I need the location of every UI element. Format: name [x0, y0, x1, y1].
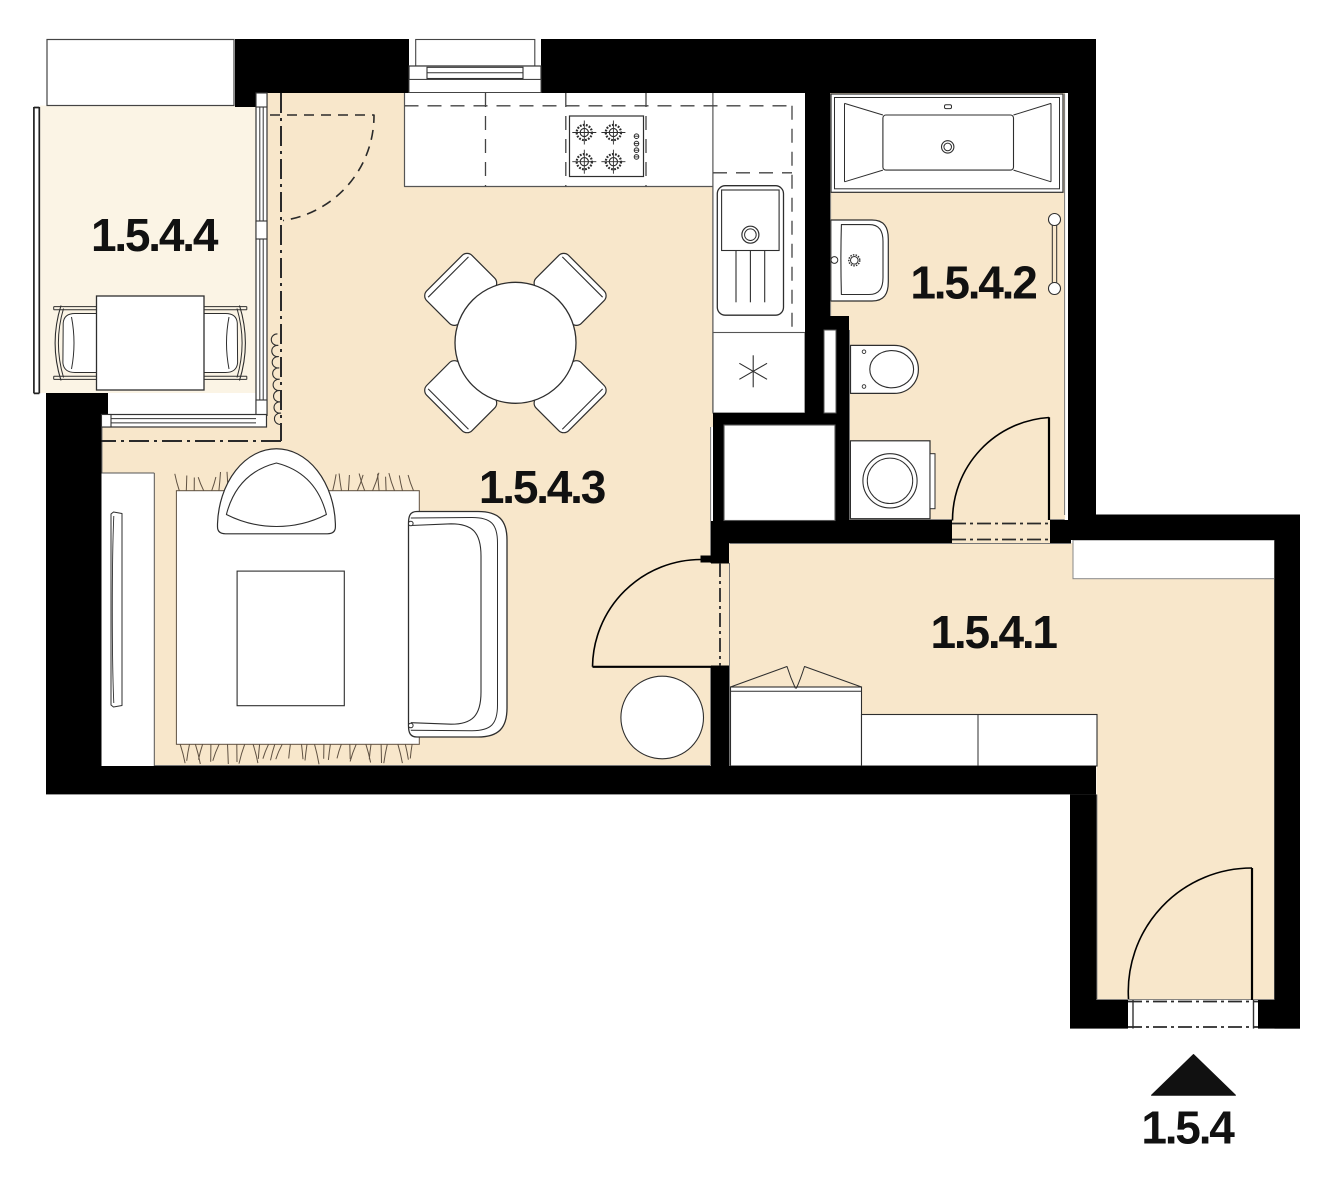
svg-text:1.5.4.1: 1.5.4.1 — [931, 606, 1058, 658]
svg-text:1.5.4.2: 1.5.4.2 — [910, 257, 1036, 309]
svg-text:1.5.4: 1.5.4 — [1141, 1102, 1235, 1154]
svg-text:1.5.4.3: 1.5.4.3 — [479, 461, 605, 513]
svg-text:1.5.4.4: 1.5.4.4 — [91, 209, 219, 261]
